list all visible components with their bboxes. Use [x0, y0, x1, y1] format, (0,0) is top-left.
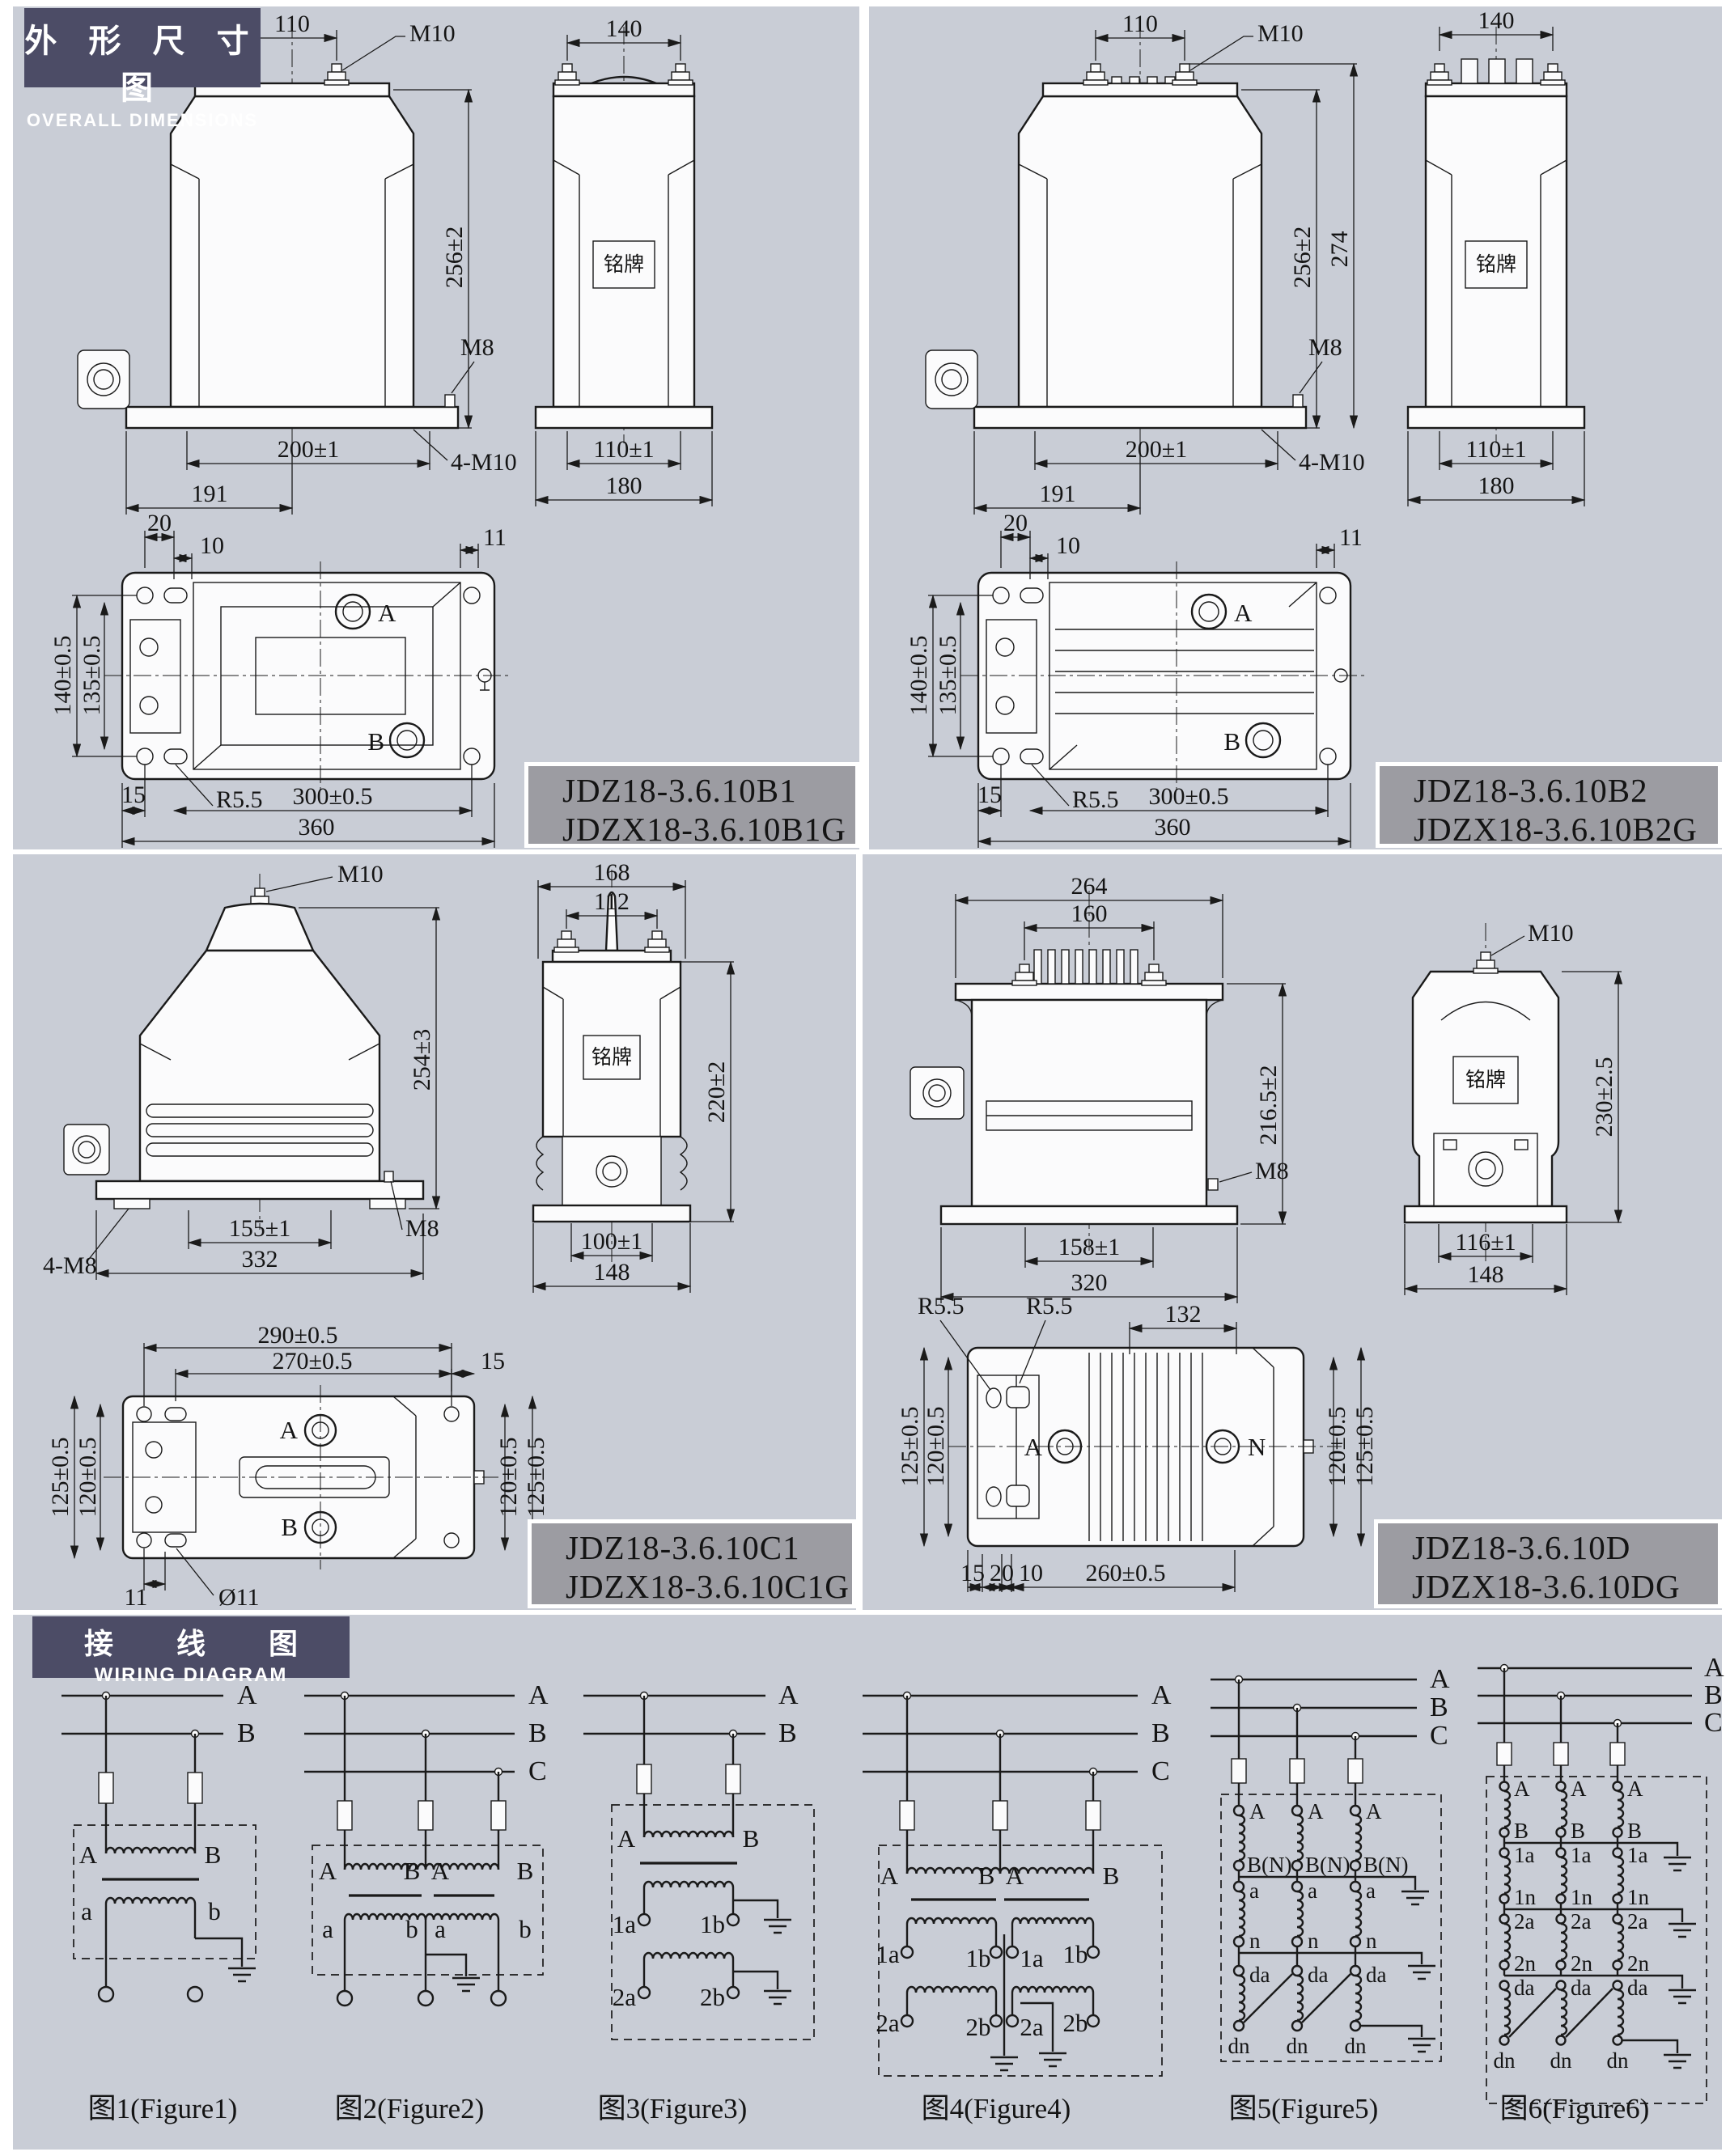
- winding-label: A: [431, 1857, 450, 1885]
- winding-label: B: [743, 1824, 760, 1853]
- winding-label: 1n: [1571, 1885, 1593, 1909]
- dim-label: 11: [125, 1584, 148, 1611]
- winding-label: dn: [1345, 2034, 1367, 2058]
- winding-label: A: [1571, 1777, 1587, 1801]
- dim-label: 20: [990, 1560, 1014, 1586]
- dim-label: 15: [960, 1560, 985, 1586]
- dim-label: 140±0.5: [905, 636, 932, 716]
- dim-label: 360: [299, 814, 335, 841]
- page: 110 M10 256±2 M8 200±1 4-M10 191 铭牌 140 …: [0, 0, 1730, 2156]
- dim-label: 125±0.5: [897, 1407, 923, 1487]
- winding-label: dn: [1550, 2048, 1573, 2073]
- bus-label: A: [1151, 1680, 1172, 1710]
- model-name: JDZX18-3.6.10B2G: [1414, 810, 1718, 849]
- bus-label: A: [778, 1680, 799, 1710]
- bus-label: A: [528, 1680, 549, 1710]
- figure-caption: 图4(Figure4): [922, 2093, 1071, 2124]
- winding-label: 2n: [1627, 1951, 1650, 1976]
- dim-label: 180: [606, 472, 642, 499]
- winding-label: da: [1249, 1963, 1270, 1987]
- dim-label: 20: [1003, 510, 1028, 536]
- winding-label: A: [1366, 1799, 1382, 1823]
- dim-label: 256±2: [441, 227, 468, 288]
- winding-label: da: [1627, 1976, 1648, 2000]
- dim-label: 230±2.5: [1591, 1057, 1618, 1137]
- terminal-label: A: [1234, 599, 1253, 627]
- winding-label: B: [1103, 1862, 1120, 1890]
- dim-label: 140±0.5: [49, 636, 76, 716]
- dim-label: M10: [1528, 920, 1574, 947]
- winding-label: 2b: [966, 2013, 991, 2041]
- winding-label: A: [1006, 1862, 1024, 1890]
- dim-label: R5.5: [216, 786, 263, 813]
- dim-label: M8: [1255, 1158, 1289, 1184]
- bus-label: C: [1430, 1721, 1448, 1751]
- dim-label: 110: [274, 11, 310, 37]
- winding-label: B: [1627, 1819, 1642, 1843]
- winding-label: A: [79, 1840, 98, 1869]
- dim-label: 110: [1122, 11, 1158, 37]
- dim-label: 300±0.5: [1149, 783, 1229, 810]
- winding-label: b: [519, 1915, 532, 1943]
- nameplate-text: 铭牌: [604, 253, 644, 276]
- dim-label: 191: [1040, 481, 1076, 507]
- header-title-en: WIRING DIAGRAM: [32, 1664, 350, 1687]
- dim-label: 270±0.5: [273, 1348, 353, 1375]
- winding-label: a: [322, 1915, 333, 1943]
- dim-label: 4-M10: [1299, 449, 1365, 476]
- winding-label: B: [1514, 1819, 1529, 1843]
- bus-label: C: [528, 1756, 547, 1786]
- winding-label: da: [1366, 1963, 1387, 1987]
- winding-label: 1a: [1020, 1944, 1044, 1972]
- winding-label: dn: [1228, 2034, 1251, 2058]
- dim-label: 200±1: [1126, 436, 1187, 463]
- winding-label: 1a: [1627, 1843, 1648, 1867]
- dim-label: 320: [1071, 1269, 1108, 1296]
- terminal-label: B: [1223, 727, 1240, 756]
- dim-label: 135±0.5: [78, 636, 105, 716]
- dim-label: 116±1: [1455, 1229, 1516, 1256]
- winding-label: 2a: [613, 1983, 637, 2011]
- winding-label: 2n: [1514, 1951, 1537, 1976]
- winding-label: b: [405, 1915, 418, 1943]
- dim-label: 11: [483, 524, 507, 551]
- dim-label: 120±0.5: [1324, 1407, 1351, 1487]
- bus-label: A: [1704, 1653, 1724, 1683]
- dim-label: 220±2: [703, 1061, 730, 1123]
- dim-label: 191: [192, 481, 228, 507]
- dim-label: 110±1: [593, 436, 654, 463]
- winding-label: n: [1308, 1929, 1319, 1953]
- dim-label: M8: [460, 334, 494, 361]
- dim-label: R5.5: [1026, 1293, 1073, 1319]
- winding-label: B: [978, 1862, 995, 1890]
- dim-label: 256±2: [1289, 227, 1316, 288]
- dim-label: M8: [405, 1215, 439, 1242]
- winding-label: B(N): [1363, 1853, 1409, 1877]
- terminal-label: A: [378, 599, 396, 627]
- winding-label: b: [208, 1897, 221, 1925]
- dim-label: 140: [606, 15, 642, 42]
- winding-label: 2a: [876, 2009, 900, 2037]
- winding-label: B: [1571, 1819, 1585, 1843]
- winding-label: da: [1308, 1963, 1329, 1987]
- dim-label: 180: [1478, 472, 1515, 499]
- winding-label: B(N): [1305, 1853, 1351, 1877]
- winding-label: B: [517, 1857, 534, 1885]
- model-name: JDZX18-3.6.10DG: [1412, 1567, 1718, 1606]
- winding-label: 2a: [1020, 2013, 1044, 2041]
- dim-label: 148: [594, 1259, 630, 1286]
- header-title-en: OVERALL DIMENSIONS: [24, 110, 261, 131]
- winding-label: 2a: [1627, 1909, 1648, 1934]
- dim-label: 125±0.5: [523, 1438, 549, 1518]
- dim-label: 160: [1071, 900, 1108, 927]
- winding-label: 1n: [1514, 1885, 1537, 1909]
- winding-label: A: [1514, 1777, 1530, 1801]
- dim-label: 290±0.5: [258, 1322, 338, 1349]
- winding-label: A: [1308, 1799, 1324, 1823]
- dim-label: 216.5±2: [1255, 1065, 1282, 1146]
- dim-label: 11: [1339, 524, 1363, 551]
- winding-label: 1a: [613, 1910, 637, 1938]
- winding-label: a: [1249, 1879, 1259, 1903]
- dim-label: 15: [977, 781, 1002, 808]
- dim-label: 140: [1478, 7, 1515, 34]
- model-label-b2: JDZ18-3.6.10B2 JDZX18-3.6.10B2G: [1376, 762, 1722, 848]
- dim-label: 274: [1326, 231, 1353, 268]
- dim-label: M8: [1308, 334, 1342, 361]
- dim-label: 332: [242, 1246, 278, 1273]
- winding-label: 1n: [1627, 1885, 1650, 1909]
- header-title-zh: 外 形 尺 寸 图: [24, 15, 261, 108]
- dim-label: 120±0.5: [922, 1407, 949, 1487]
- winding-label: dn: [1607, 2048, 1630, 2073]
- dim-label: 4-M8: [43, 1252, 97, 1279]
- winding-label: 2b: [1063, 2009, 1088, 2037]
- model-name: JDZX18-3.6.10C1G: [566, 1567, 852, 1606]
- bus-label: C: [1704, 1708, 1723, 1738]
- dim-label: 158±1: [1058, 1234, 1120, 1260]
- dim-label: 20: [147, 510, 172, 536]
- dim-label: 110±1: [1465, 436, 1526, 463]
- dim-label: 155±1: [229, 1215, 290, 1242]
- model-label-c1: JDZ18-3.6.10C1 JDZX18-3.6.10C1G: [528, 1519, 856, 1608]
- drawing-canvas: 110 M10 256±2 M8 200±1 4-M10 191 铭牌 140 …: [0, 0, 1730, 2156]
- nameplate-text: 铭牌: [592, 1046, 632, 1069]
- dim-label: R5.5: [1072, 786, 1119, 813]
- overall-dimensions-header: 外 形 尺 寸 图 OVERALL DIMENSIONS: [24, 8, 261, 87]
- winding-label: A: [1249, 1799, 1266, 1823]
- model-name: JDZ18-3.6.10B1: [562, 771, 855, 810]
- winding-label: 1a: [1571, 1843, 1592, 1867]
- winding-label: B: [205, 1840, 222, 1869]
- winding-label: n: [1249, 1929, 1261, 1953]
- dim-label: 264: [1071, 873, 1108, 900]
- dim-label: 200±1: [278, 436, 339, 463]
- dim-label: Ø11: [218, 1584, 260, 1611]
- header-title-zh: 接 线 图: [32, 1620, 350, 1663]
- dim-label: 100±1: [581, 1228, 642, 1255]
- winding-label: n: [1366, 1929, 1377, 1953]
- winding-label: 2b: [700, 1983, 725, 2011]
- dim-label: 254±3: [409, 1029, 435, 1091]
- model-name: JDZX18-3.6.10B1G: [562, 810, 855, 849]
- winding-label: B(N): [1247, 1853, 1292, 1877]
- dim-label: 148: [1468, 1261, 1504, 1288]
- terminal-label: B: [367, 727, 384, 756]
- bus-label: B: [528, 1718, 547, 1748]
- model-name: JDZ18-3.6.10C1: [566, 1528, 852, 1567]
- dim-label: 135±0.5: [935, 636, 961, 716]
- winding-label: 1a: [1514, 1843, 1535, 1867]
- dim-label: 15: [481, 1348, 505, 1375]
- winding-label: A: [617, 1824, 636, 1853]
- winding-label: a: [435, 1915, 446, 1943]
- bus-label: B: [237, 1718, 256, 1748]
- bus-label: C: [1151, 1756, 1170, 1786]
- winding-label: A: [319, 1857, 337, 1885]
- dim-label: 125±0.5: [1351, 1407, 1378, 1487]
- dim-label: 10: [200, 532, 224, 559]
- winding-label: A: [880, 1862, 899, 1890]
- bus-label: B: [1704, 1680, 1723, 1710]
- dim-label: 112: [594, 888, 630, 915]
- figure-caption: 图3(Figure3): [598, 2093, 748, 2124]
- model-label-b1: JDZ18-3.6.10B1 JDZX18-3.6.10B1G: [524, 762, 859, 848]
- dim-label: R5.5: [918, 1293, 965, 1319]
- winding-label: 1b: [1063, 1940, 1088, 1968]
- dim-label: M10: [409, 20, 456, 47]
- figure-caption: 图5(Figure5): [1229, 2093, 1379, 2124]
- model-name: JDZ18-3.6.10B2: [1414, 771, 1718, 810]
- dim-label: 15: [121, 781, 146, 808]
- winding-label: 1b: [700, 1910, 725, 1938]
- bus-label: B: [1151, 1718, 1170, 1748]
- winding-label: B: [404, 1857, 421, 1885]
- winding-label: a: [1366, 1879, 1376, 1903]
- winding-label: da: [1571, 1976, 1592, 2000]
- dim-label: 10: [1019, 1560, 1043, 1586]
- dim-label: 120±0.5: [74, 1438, 101, 1518]
- figure-caption: 图6(Figure6): [1500, 2093, 1650, 2124]
- winding-label: 1b: [966, 1944, 991, 1972]
- nameplate-text: 铭牌: [1465, 1069, 1506, 1091]
- model-label-d: JDZ18-3.6.10D JDZX18-3.6.10DG: [1374, 1519, 1722, 1608]
- dim-label: 300±0.5: [293, 783, 373, 810]
- figure-caption: 图1(Figure1): [88, 2093, 238, 2124]
- winding-label: A: [1627, 1777, 1643, 1801]
- dim-label: 4-M10: [451, 449, 517, 476]
- terminal-label: B: [281, 1513, 298, 1541]
- winding-label: da: [1514, 1976, 1535, 2000]
- dim-label: M10: [1257, 20, 1304, 47]
- wiring-diagram-header: 接 线 图 WIRING DIAGRAM: [32, 1616, 350, 1678]
- terminal-label: A: [280, 1416, 299, 1444]
- dim-label: 10: [1056, 532, 1080, 559]
- dim-label: 120±0.5: [495, 1438, 522, 1518]
- bus-label: B: [1430, 1692, 1448, 1722]
- dim-label: 125±0.5: [47, 1438, 74, 1518]
- dim-label: 360: [1155, 814, 1191, 841]
- model-name: JDZ18-3.6.10D: [1412, 1528, 1718, 1567]
- nameplate-text: 铭牌: [1476, 253, 1516, 276]
- winding-label: dn: [1287, 2034, 1309, 2058]
- winding-label: 2a: [1571, 1909, 1592, 1934]
- winding-label: 1a: [876, 1940, 900, 1968]
- dim-label: 132: [1165, 1301, 1202, 1328]
- bus-label: B: [778, 1718, 797, 1748]
- dim-label: 168: [594, 859, 630, 886]
- bus-label: A: [1430, 1664, 1450, 1694]
- winding-label: 2n: [1571, 1951, 1593, 1976]
- winding-label: dn: [1494, 2048, 1516, 2073]
- figure-caption: 图2(Figure2): [335, 2093, 485, 2124]
- winding-label: a: [81, 1897, 92, 1925]
- dim-label: M10: [337, 861, 384, 887]
- winding-label: a: [1308, 1879, 1317, 1903]
- winding-label: 2a: [1514, 1909, 1535, 1934]
- dim-label: 260±0.5: [1086, 1560, 1166, 1586]
